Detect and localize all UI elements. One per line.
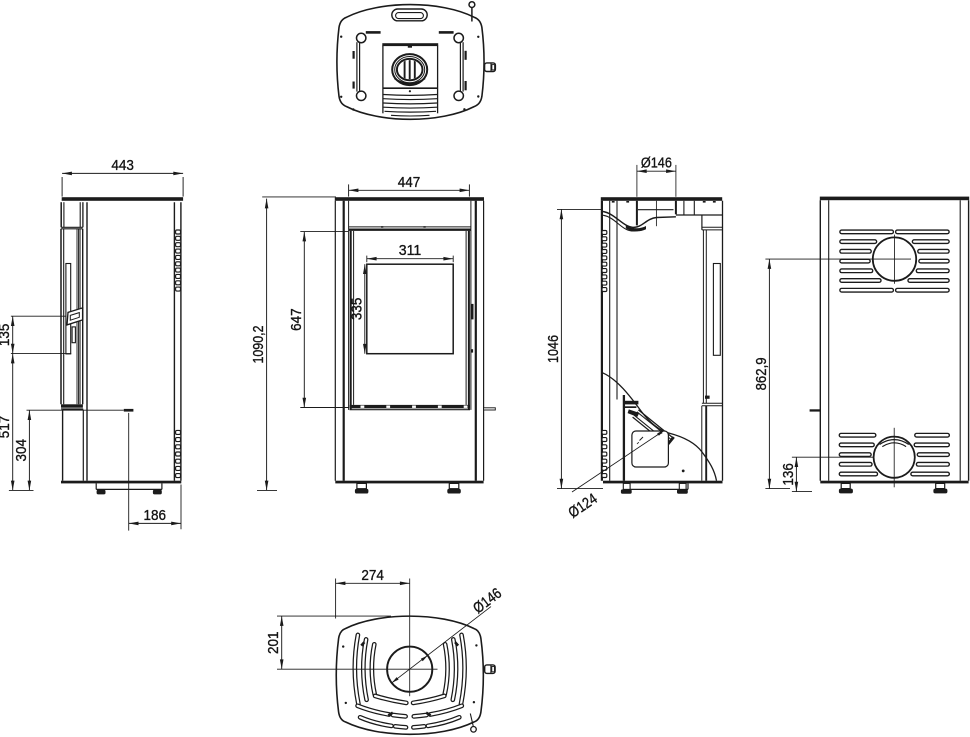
svg-text:304: 304 <box>13 439 30 462</box>
svg-text:186: 186 <box>144 507 167 524</box>
svg-text:201: 201 <box>265 631 282 654</box>
svg-text:443: 443 <box>111 157 134 174</box>
svg-text:311: 311 <box>399 242 422 259</box>
svg-text:647: 647 <box>288 308 305 331</box>
svg-text:274: 274 <box>361 567 384 584</box>
svg-text:447: 447 <box>398 174 421 191</box>
svg-text:1090,2: 1090,2 <box>250 326 267 364</box>
svg-text:517: 517 <box>0 416 13 439</box>
svg-text:862,9: 862,9 <box>753 357 770 390</box>
svg-text:136: 136 <box>780 463 797 486</box>
svg-text:335: 335 <box>348 298 365 321</box>
svg-text:135: 135 <box>0 324 13 347</box>
svg-text:Ø146: Ø146 <box>641 155 672 172</box>
svg-text:1046: 1046 <box>545 335 562 363</box>
